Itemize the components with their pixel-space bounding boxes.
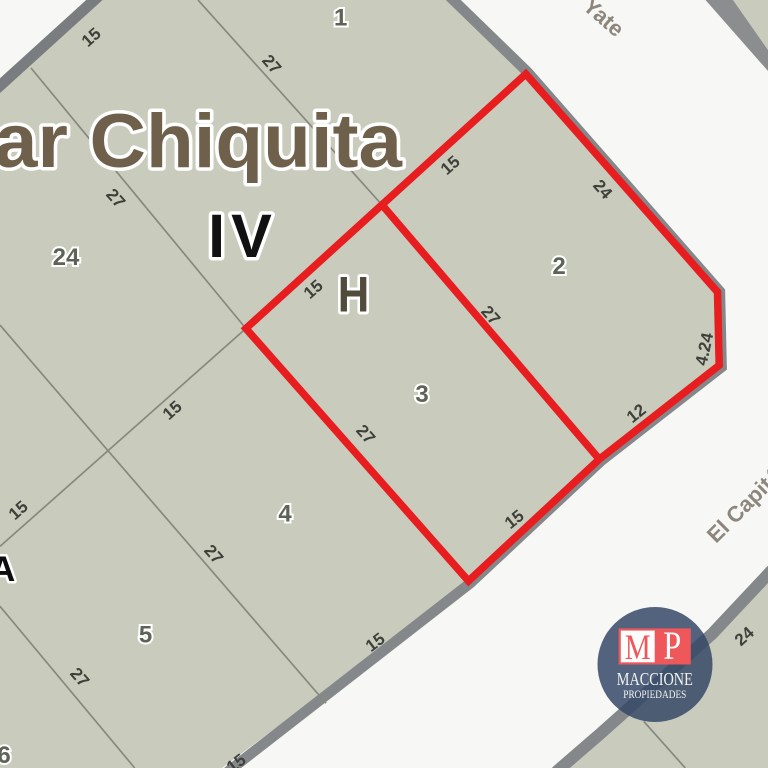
svg-text:PROPIEDADES: PROPIEDADES	[623, 689, 686, 701]
svg-text:1: 1	[334, 5, 347, 32]
svg-text:H: H	[338, 267, 370, 323]
svg-text:MACCIONE: MACCIONE	[617, 669, 693, 689]
svg-text:5: 5	[139, 622, 152, 649]
svg-text:2: 2	[552, 253, 565, 280]
svg-text:IV: IV	[208, 202, 278, 270]
svg-text:24: 24	[53, 244, 80, 271]
svg-text:M: M	[625, 627, 651, 667]
svg-text:A: A	[0, 550, 15, 589]
svg-text:6: 6	[0, 742, 11, 768]
svg-text:4: 4	[278, 501, 292, 528]
svg-text:ar Chiquita: ar Chiquita	[0, 99, 403, 184]
svg-text:3: 3	[415, 381, 428, 408]
svg-text:P: P	[663, 623, 681, 668]
